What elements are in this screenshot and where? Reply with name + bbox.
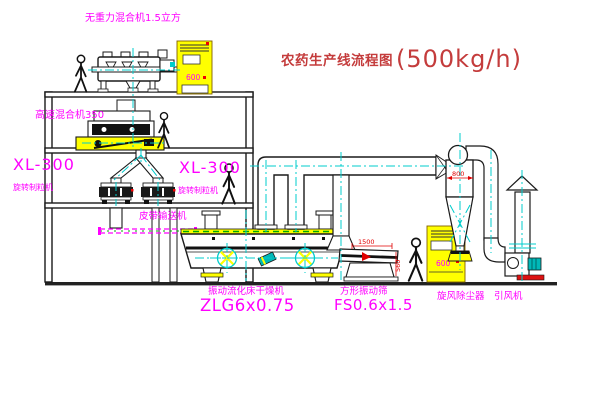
granulator-left-name-label: 旋转制粒机 <box>13 184 53 192</box>
discharge-pipe <box>110 208 122 228</box>
cyclone-diameter-dim: 800 <box>452 170 464 178</box>
gravity-mixer-label: 无重力混合机1.5立方 <box>85 14 181 24</box>
vibrating-screen <box>339 249 398 281</box>
title-capacity: (500kg/h) <box>396 45 522 73</box>
granulator-right-model-label: XL-300 <box>179 160 241 176</box>
screen-model-label: FS0.6x1.5 <box>334 298 413 313</box>
belt-conveyor-label: 皮带输送机 <box>139 212 187 222</box>
screen-height-dim: 560 <box>394 260 402 272</box>
gravity-mixer <box>92 50 178 111</box>
exhaust-duct <box>255 155 448 229</box>
person-figure <box>75 55 87 91</box>
granulator-left-model-label: XL-300 <box>13 157 75 173</box>
control-cabinet-top: 600 <box>177 41 212 94</box>
cyclone-name-label: 旋风除尘器 <box>437 292 485 302</box>
person-figure <box>409 238 422 280</box>
title-text: 农药生产线流程图 <box>281 49 393 69</box>
diagram-canvas: 600 <box>0 0 600 403</box>
cabinet-top-text: 600 <box>186 73 201 82</box>
high-speed-mixer-label: 高速混合机350 <box>35 111 104 121</box>
granulator-right-name-label: 旋转制粒机 <box>178 187 218 195</box>
dryer-model-label: ZLG6x0.75 <box>200 298 295 315</box>
fan-name-label: 引风机 <box>494 292 523 302</box>
diagram-title: 农药生产线流程图 (500kg/h) <box>281 45 522 73</box>
screen-length-dim: 1500 <box>358 238 375 246</box>
